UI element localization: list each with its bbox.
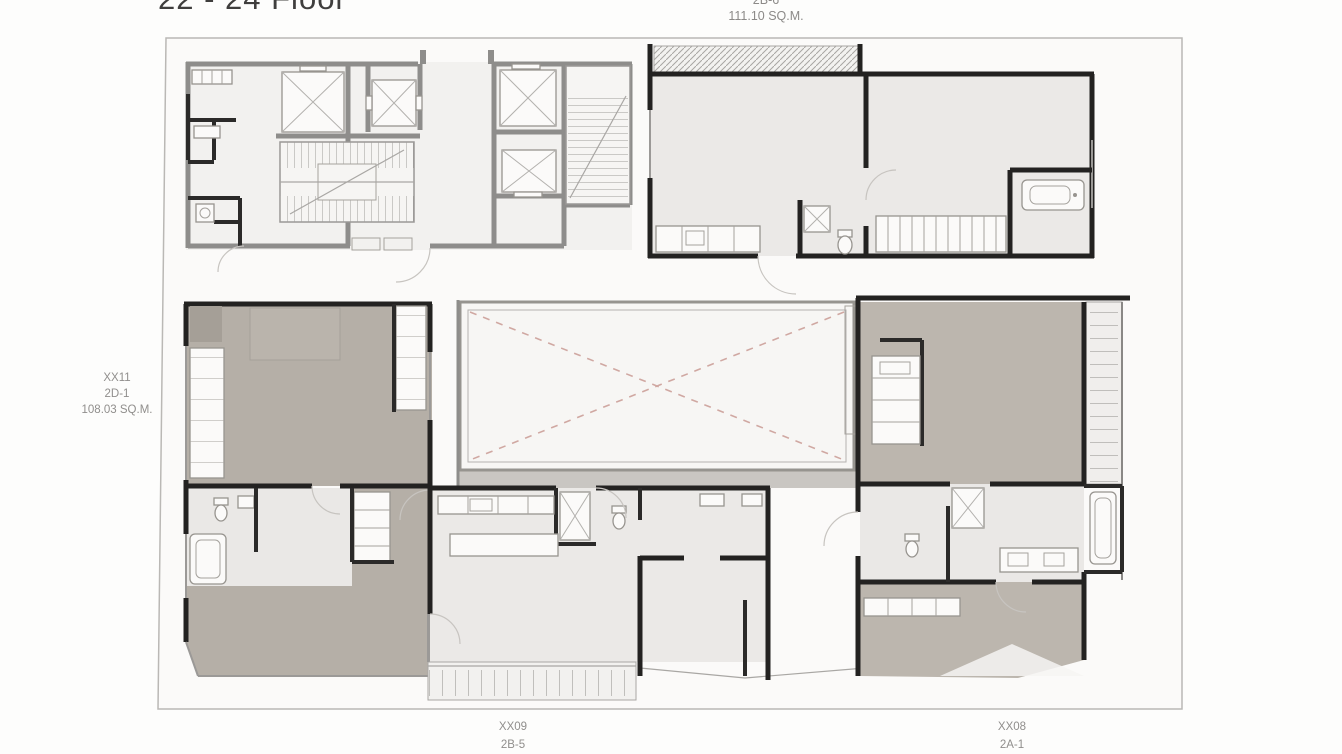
elevator-shaft <box>366 80 422 126</box>
bathtub <box>1022 180 1084 210</box>
bathtub <box>1090 492 1116 564</box>
sink <box>238 496 254 508</box>
shower <box>952 488 984 528</box>
unit-2b6-area: 111.10 SQ.M. <box>728 9 803 23</box>
washer-icon <box>196 204 214 222</box>
closet-column <box>396 306 426 410</box>
unit-2d1-id: XX11 <box>103 372 130 384</box>
central-void <box>458 300 856 488</box>
bed <box>250 308 340 360</box>
kitchen-counter <box>656 226 760 252</box>
unit-2d1-type: 2D-1 <box>105 388 130 400</box>
unit-2d1 <box>184 302 432 676</box>
closet <box>190 306 222 342</box>
sink <box>700 494 724 506</box>
staircase-main <box>280 142 414 222</box>
toilet-icon <box>905 534 919 557</box>
elevator-shaft <box>502 150 556 197</box>
shower <box>560 492 590 540</box>
shower <box>804 206 830 232</box>
sink <box>742 494 762 506</box>
balcony-top <box>654 46 858 72</box>
kitchen-counter <box>354 492 390 562</box>
toilet-icon <box>838 230 852 254</box>
elevator-shaft <box>282 66 344 132</box>
toilet-icon <box>214 498 228 521</box>
page-title: 22 - 24 Floor <box>158 0 347 16</box>
kitchen-counter <box>872 356 920 444</box>
toilet-icon <box>612 506 626 529</box>
wardrobe <box>864 598 960 616</box>
balcony-bottom <box>428 662 636 700</box>
staircase-secondary <box>566 66 630 204</box>
floor-plan-drawing: 22 - 24 Floor 2B-6 111.10 SQ.M. XX11 2D-… <box>0 0 1342 754</box>
vanity <box>1000 548 1078 572</box>
unit-2a1-type: 2A-1 <box>1000 739 1024 751</box>
elevator-shaft <box>500 64 556 126</box>
bathtub <box>190 534 226 584</box>
unit-2b5-type: 2B-5 <box>501 739 525 751</box>
unit-2b6 <box>648 44 1094 294</box>
unit-2b5-id: XX09 <box>499 721 527 733</box>
unit-2a1-id: XX08 <box>998 721 1026 733</box>
unit-2b6-type: 2B-6 <box>753 0 779 7</box>
core-area <box>186 50 632 282</box>
floor-plan-page: 22 - 24 Floor 2B-6 111.10 SQ.M. XX11 2D-… <box>0 0 1342 754</box>
kitchen-island <box>450 534 558 556</box>
unit-2a1 <box>824 298 1130 678</box>
unit-2d1-area: 108.03 SQ.M. <box>82 404 153 416</box>
wardrobe <box>876 216 1006 252</box>
wardrobe <box>190 348 224 478</box>
